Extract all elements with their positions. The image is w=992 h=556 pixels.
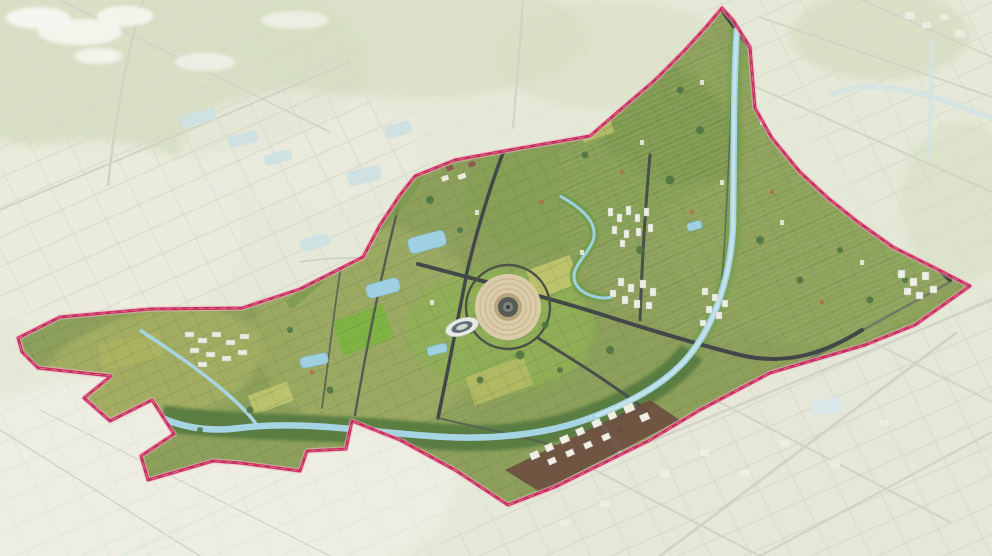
masterplan-svg [0,0,992,556]
masterplan-map [0,0,992,556]
central-stadium [475,274,541,340]
